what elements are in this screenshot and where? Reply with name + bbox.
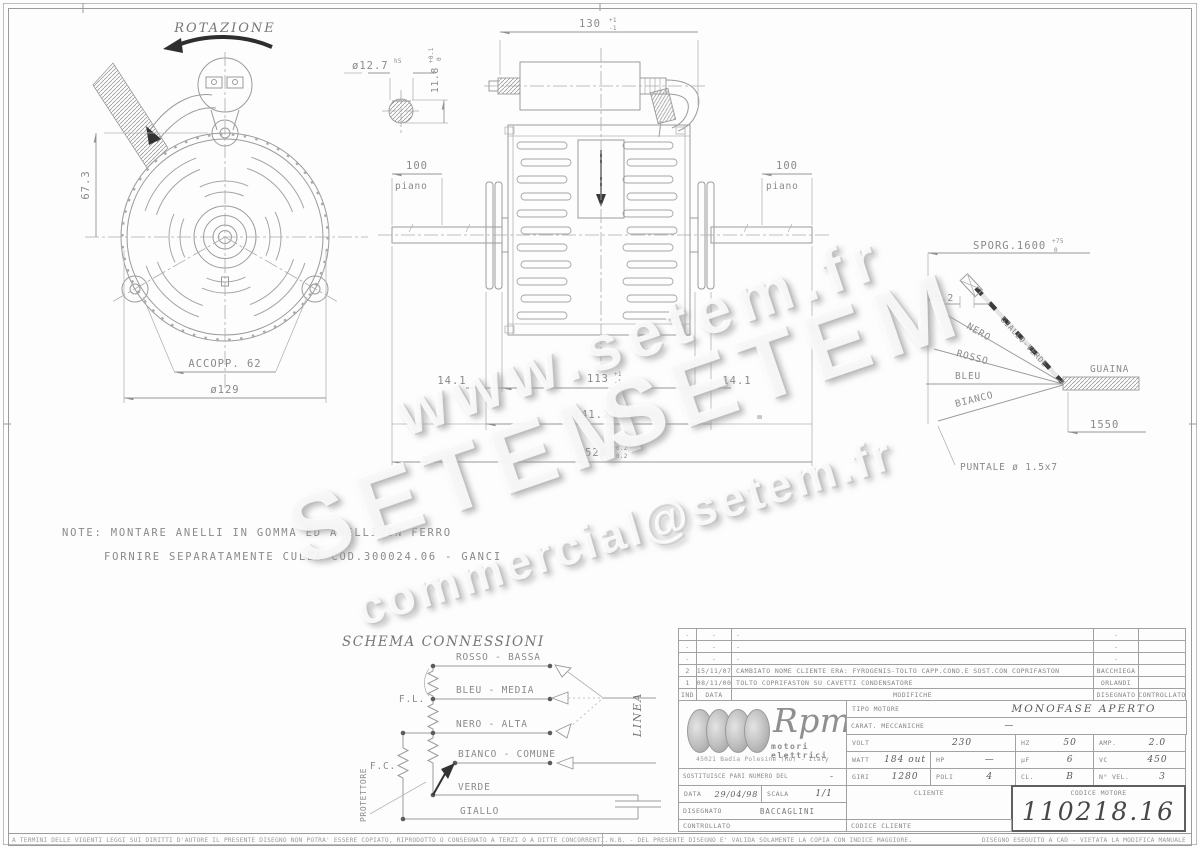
tipo-motore-cell: TIPO MOTORE MONOFASE APERTO bbox=[846, 700, 1187, 718]
nvel-label: N° VEL. bbox=[1094, 773, 1140, 781]
uf-value: 6 bbox=[1047, 755, 1093, 765]
sporg-tp: +75 bbox=[1052, 238, 1064, 245]
cliente-cell: CLIENTE bbox=[846, 785, 1012, 820]
watt-value: 184 out bbox=[880, 755, 930, 765]
legal-strip: A TERMINI DELLE VIGENTI LEGGI SUI DIRITT… bbox=[8, 833, 1192, 847]
volt-cell: VOLT 230 bbox=[846, 734, 1016, 752]
dim-5-2: ø5.2 bbox=[928, 293, 954, 304]
connection-schema: SCHEMA CONNESSIONI bbox=[342, 634, 661, 822]
hz-cell: HZ 50 bbox=[1015, 734, 1094, 752]
sostituisce-value: - bbox=[830, 772, 834, 782]
controllato-cell: CONTROLLATO bbox=[678, 819, 847, 832]
dim-11-8: 11.8 bbox=[430, 67, 441, 93]
rotation-label: ROTAZIONE bbox=[173, 21, 275, 36]
uf-cell: µF 6 bbox=[1015, 751, 1094, 769]
dim-100-left: 100 bbox=[406, 160, 428, 172]
giri-value: 1280 bbox=[880, 772, 930, 782]
dim-130-tm: -1 bbox=[609, 25, 617, 32]
equal-mark-right: = bbox=[757, 412, 764, 423]
schema-bleu-media: BLEU - MEDIA bbox=[456, 685, 534, 696]
wire-label-rosso: ROSSO bbox=[955, 348, 989, 367]
scala-cell: SCALA 1/1 bbox=[761, 785, 847, 803]
cliente-label: CLIENTE bbox=[914, 789, 944, 797]
codice-motore-cell: CODICE MOTORE 110218.16 bbox=[1011, 785, 1186, 832]
sostituisce-label: SOSTITUISCE PARI NUMERO DEL bbox=[679, 774, 788, 780]
poli-cell: POLI 4 bbox=[930, 768, 1016, 786]
dim-1550: 1550 bbox=[1090, 419, 1119, 431]
cl-value: B bbox=[1047, 772, 1093, 782]
vc-value: 450 bbox=[1130, 755, 1185, 765]
dim-11-8-tm: 0 bbox=[436, 57, 443, 61]
amp-label: AMP. bbox=[1094, 739, 1130, 747]
schema-protettore: PROTETTORE bbox=[359, 768, 368, 822]
shaft-section-detail: ø12.7 h5 11.8 +0.1 0 bbox=[344, 47, 448, 133]
dim-520-tm: -0.2 bbox=[612, 453, 628, 460]
amp-cell: AMP. 2.0 bbox=[1093, 734, 1186, 752]
codice-cliente-label: CODICE CLIENTE bbox=[847, 822, 911, 830]
dim-100-right: 100 bbox=[776, 160, 798, 172]
wire-label-nero: NERO bbox=[965, 321, 993, 344]
vc-label: VC bbox=[1094, 756, 1130, 764]
dim-accopp: ACCOPP. 62 bbox=[188, 358, 261, 370]
dim-520-tp: +0.2 bbox=[612, 445, 628, 452]
schema-title: SCHEMA CONNESSIONI bbox=[342, 634, 545, 650]
guaina-sheath bbox=[1063, 377, 1139, 390]
scala-label: SCALA bbox=[762, 790, 802, 798]
schema-fl: F.L. bbox=[399, 694, 425, 705]
carat-value: — bbox=[1004, 721, 1014, 731]
legal-text-left: A TERMINI DELLE VIGENTI LEGGI SUI DIRITT… bbox=[12, 837, 609, 844]
guaina-label: GUAINA bbox=[1090, 364, 1129, 375]
controllato-label: CONTROLLATO bbox=[679, 822, 730, 830]
schema-bianco-comune: BIANCO - COMUNE bbox=[458, 749, 556, 760]
rpm-logo-coil bbox=[744, 709, 770, 753]
dim-11-8-tp: +0.1 bbox=[428, 47, 435, 63]
hz-value: 50 bbox=[1047, 738, 1093, 748]
tipo-motore-value: MONOFASE APERTO bbox=[982, 703, 1186, 715]
schema-fc: F.C. bbox=[370, 761, 396, 772]
note-block: NOTE: MONTARE ANELLI IN GOMMA ED ANELLI … bbox=[62, 527, 502, 563]
dim-520: 520 bbox=[585, 447, 607, 459]
nvel-value: 3 bbox=[1140, 772, 1185, 782]
dim-113-tp: +1 bbox=[614, 371, 622, 378]
carat-cell: CARAT. MECCANICHE — bbox=[846, 717, 1187, 735]
wire-label-giallo-verde: GIALLO-VERDE bbox=[999, 315, 1050, 369]
piano-left: piano bbox=[395, 181, 428, 192]
volt-value: 230 bbox=[909, 738, 1015, 748]
hp-cell: HP — bbox=[930, 751, 1016, 769]
sporg-tm: 0 bbox=[1054, 247, 1058, 254]
nvel-cell: N° VEL. 3 bbox=[1093, 768, 1186, 786]
side-dimensions: 130 +1 -1 100 piano 100 piano 14.1 1 bbox=[392, 17, 812, 466]
legal-text-right: DISEGNO ESEGUITO A CAD - VIETATA LA MODI… bbox=[982, 837, 1186, 844]
capacitor-lines bbox=[484, 62, 708, 137]
scala-value: 1/1 bbox=[802, 789, 846, 799]
giri-label: GIRI bbox=[847, 773, 880, 781]
sostituisce-cell: SOSTITUISCE PARI NUMERO DEL - bbox=[678, 768, 847, 786]
poli-value: 4 bbox=[965, 772, 1015, 782]
shaft-fit-label: h5 bbox=[394, 58, 402, 65]
codice-motore-value: 110218.16 bbox=[1022, 797, 1175, 826]
amp-value: 2.0 bbox=[1130, 738, 1185, 748]
front-view: ROTAZIONE bbox=[80, 21, 368, 403]
giri-cell: GIRI 1280 bbox=[846, 768, 931, 786]
dim-113-tm: -1 bbox=[614, 379, 622, 386]
cl-label: CL. bbox=[1016, 773, 1047, 781]
wire-lug bbox=[960, 274, 982, 297]
equal-mark-left: = bbox=[435, 412, 442, 423]
dim-130-tp: +1 bbox=[609, 17, 617, 24]
piano-right: piano bbox=[766, 181, 799, 192]
hp-value: — bbox=[965, 755, 1015, 765]
disegnato-label: DISEGNATO bbox=[679, 807, 722, 815]
tipo-motore-label: TIPO MOTORE bbox=[847, 705, 982, 713]
dim-14-1-right: 14.1 bbox=[722, 375, 751, 387]
note-line-1: NOTE: MONTARE ANELLI IN GOMMA ED ANELLI … bbox=[62, 527, 452, 539]
legal-text-nb: N.B. - DEL PRESENTE DISEGNO E' VALIDA SO… bbox=[610, 837, 912, 844]
codice-cliente-cell: CODICE CLIENTE bbox=[846, 819, 1012, 832]
data-value: 29/04/98 bbox=[712, 790, 761, 799]
poli-label: POLI bbox=[931, 773, 965, 781]
schema-giallo: GIALLO bbox=[460, 806, 499, 817]
carat-label: CARAT. MECCANICHE bbox=[847, 722, 924, 730]
shaft-dia-label: ø12.7 bbox=[352, 60, 389, 72]
uf-label: µF bbox=[1016, 756, 1047, 764]
sporg-label: SPORG.1600 bbox=[973, 240, 1046, 252]
rotation-arrowhead bbox=[163, 38, 183, 53]
logo-box: Rpm motori elettrici 45021 Badia Polesin… bbox=[678, 700, 847, 769]
dim-141-2: 141.2 bbox=[574, 409, 611, 421]
dim-141-2-tp: +1 bbox=[617, 407, 625, 414]
note-line-2: FORNIRE SEPARATAMENTE CULLA COD.300024.0… bbox=[104, 551, 502, 563]
title-block: - - - - - - - - - - - - 2 15/11/07 CAMBI… bbox=[678, 628, 1186, 832]
drawing-sheet: ROTAZIONE bbox=[0, 0, 1200, 848]
schema-linea: LINEA bbox=[631, 692, 644, 738]
dim-130: 130 bbox=[579, 18, 601, 30]
volt-label: VOLT bbox=[847, 739, 909, 747]
data-label: DATA bbox=[679, 790, 712, 798]
legal-divider bbox=[602, 834, 603, 847]
schema-nero-alta: NERO - ALTA bbox=[456, 719, 528, 730]
rpm-logo-address: 45021 Badia Polesine (Ro) - Italy bbox=[679, 756, 846, 763]
codice-motore-label: CODICE MOTORE bbox=[1070, 789, 1126, 797]
disegnato-cell: DISEGNATO BACCAGLINI bbox=[678, 802, 847, 820]
dim-14-1-left: 14.1 bbox=[437, 375, 466, 387]
schema-verde: VERDE bbox=[458, 782, 491, 793]
schema-rosso-bassa: ROSSO - BASSA bbox=[456, 652, 541, 663]
side-view: 130 +1 -1 100 piano 100 piano 14.1 1 bbox=[378, 17, 830, 466]
front-dimensions: 67.3 ACCOPP. 62 ø129 bbox=[80, 133, 326, 403]
cl-cell: CL. B bbox=[1015, 768, 1094, 786]
hp-label: HP bbox=[931, 756, 965, 764]
hanging-bracket-lines bbox=[93, 58, 252, 168]
vc-cell: VC 450 bbox=[1093, 751, 1186, 769]
hz-label: HZ bbox=[1016, 739, 1047, 747]
watt-label: WATT bbox=[847, 756, 880, 764]
rpm-logo-text: Rpm bbox=[773, 701, 847, 740]
dim-113: 113 bbox=[587, 373, 609, 385]
puntale-label: PUNTALE ø 1.5x7 bbox=[960, 462, 1058, 473]
rotation-arrow bbox=[178, 37, 272, 47]
dim-dia-129: ø129 bbox=[210, 384, 239, 396]
watt-cell: WATT 184 out bbox=[846, 751, 931, 769]
data-cell: DATA 29/04/98 bbox=[678, 785, 762, 803]
cable-detail: SPORG.1600 +75 0 ø5.2 GIALLO-VERDE NERO … bbox=[926, 238, 1146, 473]
dim-67-3: 67.3 bbox=[80, 170, 92, 199]
dim-141-2-tm: -1 bbox=[617, 415, 625, 422]
wire-label-bleu: BLEU bbox=[955, 371, 981, 382]
disegnato-value: BACCAGLINI bbox=[760, 807, 815, 816]
